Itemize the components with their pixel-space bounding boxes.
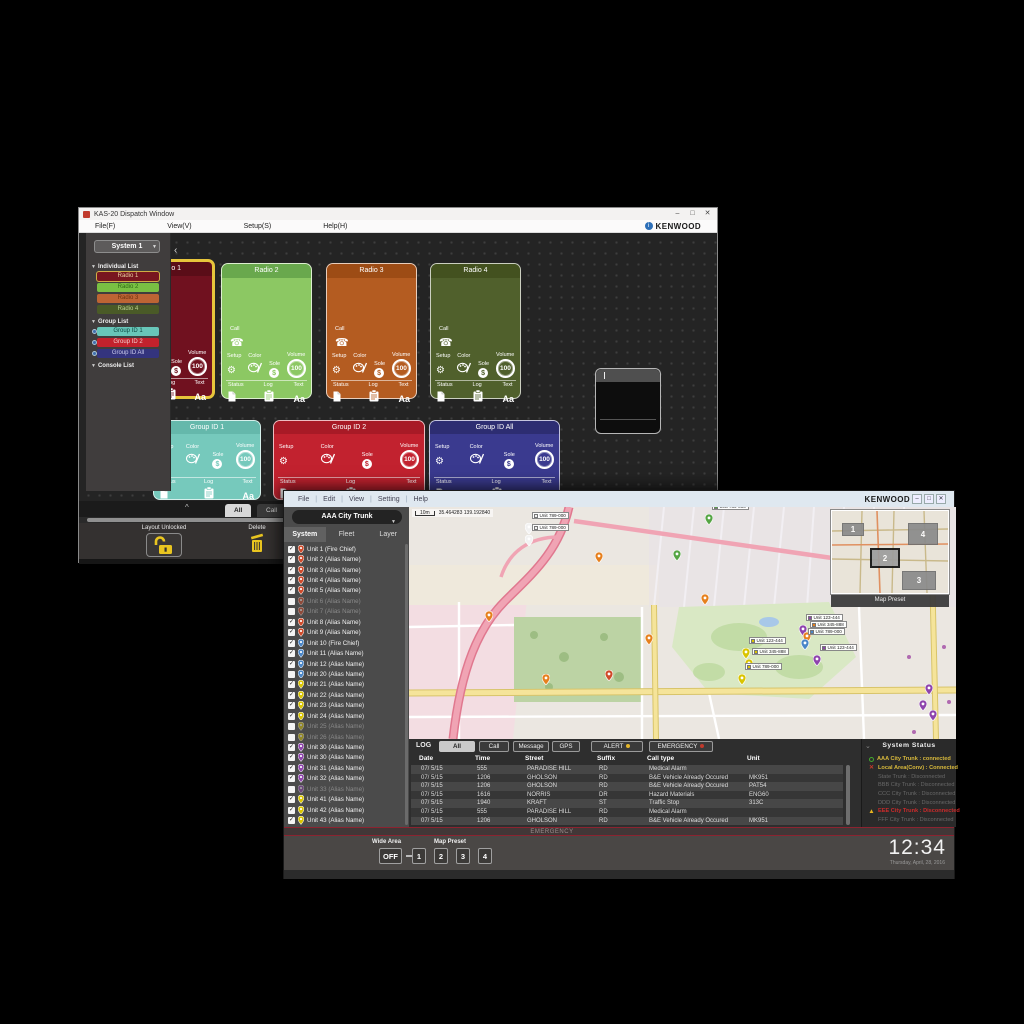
unit-row[interactable]: Unit 25 (Alias Name) (288, 721, 403, 731)
log-table-header: DateTimeStreetSuffixCall typeUnit (409, 754, 861, 765)
tile-group-id-2[interactable]: Group ID 2Setup⚙ColorSole$Volume100Statu… (273, 420, 425, 500)
minimap[interactable]: 1234 (831, 510, 949, 594)
system-status-text: BBB City Trunk : Disconnected (878, 782, 954, 788)
log-button[interactable]: Log (473, 382, 483, 407)
log-button[interactable]: Log (204, 479, 214, 501)
checkbox[interactable] (288, 598, 295, 605)
text-aa-icon: Aa (242, 491, 254, 501)
unit-map-label: Unit 123-444 (820, 644, 857, 651)
checkbox[interactable]: ✓ (288, 546, 295, 553)
volume-control[interactable]: Volume100 (236, 443, 255, 469)
color-button[interactable]: Color (470, 444, 484, 469)
setup-button[interactable]: Setup⚙ (436, 353, 450, 378)
system-status-row: ✕Local Area(Conv) : Connected (868, 764, 954, 773)
unit-label: Unit 23 (Alias Name) (307, 702, 364, 709)
unit-label: Unit 30 (Alias Name) (307, 754, 364, 761)
call-button[interactable]: Call☎ (335, 326, 349, 351)
sidebar-item-label: Radio 4 (97, 305, 159, 314)
checkbox[interactable]: ✓ (288, 661, 295, 668)
menu-item-view[interactable]: View (349, 496, 364, 503)
checkbox[interactable]: ✓ (288, 567, 295, 574)
sidebar-item-radio-3[interactable]: Radio 3 (86, 294, 170, 303)
tile-blank[interactable] (595, 368, 661, 434)
kenwood-logo: KENWOOD (865, 495, 910, 504)
unit-row[interactable]: ✓Unit 12 (Alias Name) (288, 659, 403, 669)
unit-label: Unit 42 (Alias Name) (307, 807, 364, 814)
log-cell: B&E Vehicle Already Occured (649, 818, 728, 824)
log-cell: B&E Vehicle Already Occured (649, 783, 728, 789)
tab-fleet[interactable]: Fleet (326, 527, 368, 542)
text-button[interactable]: TextAa (194, 380, 206, 405)
log-cell: 07/ 5/15 (421, 800, 443, 806)
checkbox[interactable]: ✓ (288, 629, 295, 636)
sidebar-item-label: Radio 3 (97, 294, 159, 303)
log-row[interactable]: 07/ 5/15555PARADISE HILLRDMedical Alarm (411, 765, 843, 774)
menu-item-file[interactable]: File (298, 496, 309, 503)
tile-radio-2[interactable]: Radio 2Call☎Setup⚙ColorSole$Volume100Sta… (221, 263, 312, 399)
volume-control[interactable]: Volume100 (496, 352, 515, 378)
map-bottom-bar: Wide Area OFF Map Preset 1234 12:34 Thur… (284, 836, 954, 870)
app-icon (83, 211, 90, 218)
unit-label: Unit 2 (Alias Name) (307, 556, 361, 563)
menu-item-setting[interactable]: Setting (378, 496, 400, 503)
setup-button[interactable]: Setup⚙ (279, 444, 293, 469)
minimap-preset-3[interactable]: 3 (902, 571, 936, 590)
call-button[interactable]: Call☎ (439, 326, 453, 351)
log-tab-emergency[interactable]: EMERGENCY (649, 741, 713, 752)
unit-row[interactable]: ✓Unit 23 (Alias Name) (288, 701, 403, 711)
volume-control[interactable]: Volume100 (287, 352, 306, 378)
dispatch-titlebar: KAS-20 Dispatch Window – □ ✕ (79, 208, 717, 220)
tile-radio-4[interactable]: Radio 4Call☎Setup⚙ColorSole$Volume100Sta… (430, 263, 521, 399)
sole-button[interactable]: Sole$ (269, 361, 280, 378)
pin-icon (645, 634, 653, 645)
palette-icon (186, 453, 200, 464)
volume-value: 100 (535, 450, 554, 469)
menu-item-edit[interactable]: Edit (323, 496, 335, 503)
log-button[interactable]: Log (369, 382, 379, 407)
palette-icon (353, 362, 367, 373)
pin-icon (929, 710, 937, 721)
log-cell: ST (599, 800, 607, 806)
text-aa-icon: Aa (398, 394, 410, 404)
sole-button[interactable]: Sole$ (374, 361, 385, 378)
checkbox[interactable]: ✓ (288, 817, 295, 824)
log-label: LOG (416, 742, 431, 749)
minimap-preset-1[interactable]: 1 (842, 523, 864, 536)
tile-divider (278, 477, 420, 478)
map-marker[interactable] (673, 548, 681, 566)
delete-button[interactable] (227, 533, 287, 557)
unit-row[interactable]: ✓Unit 3 (Alias Name) (288, 565, 403, 575)
pin-icon (813, 655, 821, 666)
log-cell: RD (599, 783, 608, 789)
trunk-system-dropdown[interactable]: AAA City Trunk ▼ (292, 510, 402, 524)
menu-separator: | (315, 496, 317, 503)
phone-icon: ☎ (230, 336, 244, 349)
unit-row[interactable]: Unit 26 (Alias Name) (288, 732, 403, 742)
sidebar-item-radio-4[interactable]: Radio 4 (86, 305, 170, 314)
unit-row[interactable]: ✓Unit 11 (Alias Name) (288, 648, 403, 658)
map-marker[interactable] (485, 609, 493, 627)
sole-button[interactable]: Sole$ (504, 452, 515, 469)
pin-icon (298, 722, 304, 731)
unit-row[interactable]: ✓Unit 8 (Alias Name) (288, 617, 403, 627)
palette-icon (457, 362, 471, 373)
log-cell: B&E Vehicle Already Occured (649, 775, 728, 781)
status-button[interactable]: Status (437, 382, 453, 407)
log-tab-gps[interactable]: GPS (552, 741, 580, 752)
unit-label: Unit 41 (Alias Name) (307, 796, 364, 803)
minimize-button[interactable]: – (912, 494, 922, 504)
clock: 12:34 (888, 836, 946, 860)
log-button[interactable]: Log (264, 382, 274, 407)
map-marker[interactable]: Unit 789-000 (525, 533, 533, 551)
minimize-button[interactable]: – (672, 209, 683, 219)
map-marker[interactable] (605, 668, 613, 686)
log-row[interactable]: 07/ 5/151940KRAFTSTTraffic Stop313C (411, 799, 843, 808)
volume-value: 100 (236, 450, 255, 469)
volume-value: 100 (188, 357, 207, 376)
chevron-up-icon[interactable]: ^ (185, 503, 189, 512)
pin-icon (595, 552, 603, 563)
unit-label: Unit 3 (Alias Name) (307, 567, 361, 574)
unit-row[interactable]: ✓Unit 2 (Alias Name) (288, 554, 403, 564)
log-row[interactable]: 07/ 5/151206GHOLSONRDB&E Vehicle Already… (411, 782, 843, 791)
map-marker[interactable] (919, 698, 927, 716)
call-button[interactable]: Call☎ (230, 326, 244, 351)
gear-icon: ⚙ (435, 456, 444, 467)
tile-header: Group ID 2 (274, 421, 424, 434)
map-marker[interactable] (701, 592, 709, 610)
pin-icon (485, 611, 493, 622)
volume-control[interactable]: Volume100 (392, 352, 411, 378)
pin-icon (701, 594, 709, 605)
unit-label: Unit 20 (Alias Name) (307, 671, 364, 678)
maximize-button[interactable]: □ (687, 209, 698, 219)
menu-item-helph[interactable]: Help(H) (323, 223, 347, 230)
log-column-street: Street (525, 755, 543, 762)
log-column-time: Time (475, 755, 490, 762)
sidebar-item-group-id-all[interactable]: Group ID All (86, 349, 170, 358)
checkbox[interactable]: ✓ (288, 587, 295, 594)
text-button[interactable]: TextAa (293, 382, 305, 407)
unit-row[interactable]: ✓Unit 5 (Alias Name) (288, 586, 403, 596)
dock-tab-all[interactable]: All (225, 504, 251, 517)
volume-control[interactable]: Volume100 (188, 350, 207, 376)
map-marker[interactable] (595, 550, 603, 568)
pin-icon (298, 597, 304, 606)
unit-row[interactable]: ✓Unit 31 (Alias Name) (288, 763, 403, 773)
checkbox[interactable]: ✓ (288, 650, 295, 657)
maximize-button[interactable]: □ (924, 494, 934, 504)
menu-item-filef[interactable]: File(F) (95, 223, 115, 230)
checkbox[interactable]: ✓ (288, 681, 295, 688)
status-doc-icon (228, 391, 236, 402)
sole-button[interactable]: Sole$ (478, 361, 489, 378)
sidebar-item-group-id-1[interactable]: Group ID 1 (86, 327, 170, 336)
map-menubar: File|Edit|View|Setting|Help KENWOOD – □ … (284, 491, 954, 507)
unit-row[interactable]: ✓Unit 41 (Alias Name) (288, 795, 403, 805)
unit-row[interactable]: ✓Unit 30 (Alias Name) (288, 753, 403, 763)
map-preset-button-2[interactable]: 2 (434, 848, 448, 864)
system-status-row: CCC City Trunk : Disconnected (868, 790, 954, 799)
dispatch-menubar: File(F)View(V)Setup(S)Help(H) i KENWOOD (79, 220, 717, 233)
unit-row[interactable]: ✓Unit 43 (Alias Name) (288, 815, 403, 825)
sidebar-item-label: Group ID 1 (97, 327, 159, 336)
log-cell: 07/ 5/15 (421, 818, 443, 824)
log-cell: 1206 (477, 775, 490, 781)
warning-icon: ▲ (868, 808, 875, 815)
checkbox[interactable]: ✓ (288, 765, 295, 772)
unit-row[interactable]: ✓Unit 21 (Alias Name) (288, 680, 403, 690)
unit-label: Unit 21 (Alias Name) (307, 681, 364, 688)
menu-item-viewv[interactable]: View(V) (167, 223, 191, 230)
pin-icon (298, 733, 304, 742)
close-button[interactable]: ✕ (702, 209, 713, 219)
unit-row[interactable]: ✓Unit 32 (Alias Name) (288, 774, 403, 784)
log-cell: 1206 (477, 818, 490, 824)
gear-icon: ⚙ (227, 365, 236, 376)
log-cell: 1616 (477, 792, 490, 798)
clock-date: Thursday, April, 28, 2016 (890, 860, 945, 866)
unit-row[interactable]: Unit 6 (Alias Name) (288, 596, 403, 606)
checkbox[interactable] (288, 671, 295, 678)
log-cell: RD (599, 775, 608, 781)
sidebar-section-label[interactable]: ▼Console List (91, 363, 170, 369)
unit-label: Unit 7 (Alias Name) (307, 608, 361, 615)
unit-label: Unit 32 (Alias Name) (307, 775, 364, 782)
log-row[interactable]: 07/ 5/151206GHOLSONRDB&E Vehicle Already… (411, 817, 843, 826)
log-tab-alert[interactable]: ALERT (591, 741, 643, 752)
map-marker[interactable] (542, 672, 550, 690)
unit-row[interactable]: ✓Unit 4 (Alias Name) (288, 575, 403, 585)
minimap-preset-4[interactable]: 4 (908, 523, 938, 545)
sidebar-item-radio-2[interactable]: Radio 2 (86, 283, 170, 292)
unit-label: Unit 10 (Fire Chief) (307, 640, 359, 647)
sidebar-section-label[interactable]: ▼Group List (91, 319, 170, 325)
sole-icon: $ (269, 368, 279, 378)
unit-row[interactable]: ✓Unit 22 (Alias Name) (288, 690, 403, 700)
map-preset-button-4[interactable]: 4 (478, 848, 492, 864)
tile-header: Radio 4 (431, 264, 520, 278)
unit-label: Unit 43 (Alias Name) (307, 817, 364, 824)
phone-icon: ☎ (439, 336, 453, 349)
sidebar-collapse-icon[interactable]: ‹ (174, 245, 177, 256)
unit-label: Unit 8 (Alias Name) (307, 619, 361, 626)
tile-radio-3[interactable]: Radio 3Call☎Setup⚙ColorSole$Volume100Sta… (326, 263, 417, 399)
unit-label: Unit 25 (Alias Name) (307, 723, 364, 730)
unit-row[interactable]: ✓Unit 10 (Fire Chief) (288, 638, 403, 648)
log-cell: Medical Alarm (649, 766, 687, 772)
sole-button[interactable]: Sole$ (212, 452, 223, 469)
unit-label: Unit 26 (Alias Name) (307, 734, 364, 741)
system-status-row: FFF City Trunk : Disconnected (868, 816, 954, 825)
text-aa-icon: Aa (502, 394, 514, 404)
system-status-title: System Status (862, 742, 956, 749)
gear-icon: ⚙ (279, 456, 288, 467)
checkbox[interactable]: ✓ (288, 692, 295, 699)
unit-row[interactable]: ✓Unit 1 (Fire Chief) (288, 544, 403, 554)
log-clipboard-icon (264, 390, 274, 402)
badge-dot (700, 744, 704, 748)
checkbox[interactable] (288, 786, 295, 793)
color-button[interactable]: Color (186, 444, 200, 469)
unit-row[interactable]: ✓Unit 42 (Alias Name) (288, 805, 403, 815)
log-row[interactable]: 07/ 5/151616NORRISDRHazard MaterialsENG6… (411, 791, 843, 800)
system-status-row: ▲EEE City Trunk : Disconnected (868, 807, 954, 816)
tab-layer[interactable]: Layer (367, 527, 409, 542)
color-button[interactable]: Color (353, 353, 367, 378)
checkbox[interactable]: ✓ (288, 702, 295, 709)
sole-icon: $ (374, 368, 384, 378)
log-tab-message[interactable]: Message (513, 741, 549, 752)
volume-control[interactable]: Volume100 (535, 443, 554, 469)
system-status-text: CCC City Trunk : Disconnected (878, 791, 955, 797)
unit-row[interactable]: ✓Unit 24 (Alias Name) (288, 711, 403, 721)
info-icon: i (645, 222, 653, 230)
sole-button[interactable]: Sole$ (362, 452, 373, 469)
volume-value: 100 (400, 450, 419, 469)
map-marker[interactable]: Unit 789-000 (738, 672, 746, 690)
unit-row[interactable]: Unit 33 (Alias Name) (288, 784, 403, 794)
log-cell: ENG60 (749, 792, 769, 798)
palette-icon (470, 453, 484, 464)
unit-label: Unit 30 (Alias Name) (307, 744, 364, 751)
tile-canvas: Radio 1Call☎Setup⚙ColorSole$Volume100Sta… (79, 233, 717, 501)
text-button[interactable]: TextAa (398, 382, 410, 407)
checkbox[interactable] (288, 723, 295, 730)
map-marker[interactable]: Unit 789-000 (801, 637, 809, 655)
system-status-text: AAA City Trunk : connected (877, 756, 951, 762)
checkbox[interactable]: ✓ (288, 577, 295, 584)
volume-value: 100 (496, 359, 515, 378)
fleet-panel: AAA City Trunk ▼ SystemFleetLayer ✓Unit … (284, 507, 409, 827)
badge-dot (626, 744, 630, 748)
unit-label: Unit 22 (Alias Name) (307, 692, 364, 699)
log-tab-call[interactable]: Call (479, 741, 509, 752)
log-tabbar: LOG AllCallMessageGPSALERTEMERGENCY (409, 740, 861, 753)
setup-button[interactable]: Setup⚙ (227, 353, 241, 378)
map-preset-button-1[interactable]: 1 (412, 848, 426, 864)
tab-system[interactable]: System (284, 527, 326, 542)
status-button[interactable]: Status (228, 382, 244, 407)
checkbox[interactable]: ✓ (288, 807, 295, 814)
checkbox[interactable] (288, 608, 295, 615)
map-preset-overlay-label: Map Preset (831, 594, 949, 607)
system-status-text: DDD City Trunk : Disconnected (878, 800, 955, 806)
status-button[interactable]: Status (333, 382, 349, 407)
unit-label: Unit 4 (Alias Name) (307, 577, 361, 584)
unit-map-label: Unit 789-000 (808, 628, 845, 635)
system-status-row: State Trunk : Disconnected (868, 772, 954, 781)
tile-header: Radio 3 (327, 264, 416, 278)
sidebar-item-group-id-2[interactable]: Group ID 2 (86, 338, 170, 347)
map-coordinates: 35.464283 139.192840 (439, 510, 490, 516)
map-view[interactable]: 10m 35.464283 139.192840 Unit 789-000Uni… (409, 507, 956, 739)
checkbox[interactable] (288, 734, 295, 741)
system-status-text: State Trunk : Disconnected (878, 774, 945, 780)
gear-icon: ⚙ (332, 365, 341, 376)
volume-control[interactable]: Volume100 (400, 443, 419, 469)
pin-icon (738, 674, 746, 685)
system-selector[interactable]: System 1 (94, 240, 160, 253)
log-row[interactable]: 07/ 5/15555PARADISE HILLRDMedical Alarm (411, 808, 843, 817)
checkbox[interactable]: ✓ (288, 754, 295, 761)
dock-tab-call[interactable]: Call (257, 504, 286, 517)
map-marker[interactable]: Unit 123-444 (813, 653, 821, 671)
tile-header: Group ID All (430, 421, 559, 434)
sidebar-section-label[interactable]: ▼Individual List (91, 264, 170, 270)
menu-item-help[interactable]: Help (414, 496, 428, 503)
log-cell: GHOLSON (527, 783, 557, 789)
checkbox[interactable]: ✓ (288, 713, 295, 720)
text-button[interactable]: TextAa (242, 479, 254, 501)
emergency-bar: EMERGENCY (284, 827, 954, 836)
text-button[interactable]: TextAa (502, 382, 514, 407)
checkbox[interactable]: ✓ (288, 640, 295, 647)
tile-group-id-all[interactable]: Group ID AllSetup⚙ColorSole$Volume100Sta… (429, 420, 560, 500)
checkbox[interactable]: ✓ (288, 796, 295, 803)
layout-lock-control: Layout Unlocked (117, 525, 211, 557)
trunk-system-label: AAA City Trunk (321, 513, 372, 520)
unit-row[interactable]: ✓Unit 30 (Alias Name) (288, 742, 403, 752)
log-cell: 07/ 5/15 (421, 792, 443, 798)
color-button[interactable]: Color (457, 353, 471, 378)
unit-label: Unit 11 (Alias Name) (307, 650, 364, 657)
checkbox[interactable]: ✓ (288, 775, 295, 782)
log-clipboard-icon (369, 390, 379, 402)
unit-row[interactable]: Unit 7 (Alias Name) (288, 607, 403, 617)
scrollbar-thumb[interactable] (87, 518, 287, 522)
checkbox[interactable]: ✓ (288, 744, 295, 751)
log-column-suffix: Suffix (597, 755, 615, 762)
setup-button[interactable]: Setup⚙ (332, 353, 346, 378)
unit-list-scrollbar[interactable] (405, 544, 408, 825)
color-button[interactable]: Color (321, 444, 335, 469)
setup-button[interactable]: Setup⚙ (435, 444, 449, 469)
unit-row[interactable]: Unit 20 (Alias Name) (288, 669, 403, 679)
map-marker[interactable] (929, 708, 937, 726)
map-marker[interactable] (645, 632, 653, 650)
layout-unlock-button[interactable] (146, 533, 182, 557)
minimap-preset-2[interactable]: 2 (870, 548, 900, 568)
triangle-down-icon: ▼ (91, 319, 96, 325)
close-button[interactable]: ✕ (936, 494, 946, 504)
color-button[interactable]: Color (248, 353, 262, 378)
log-tab-all[interactable]: All (439, 741, 475, 752)
map-marker[interactable]: Unit 789-000 (705, 512, 713, 530)
text-aa-icon: Aa (194, 392, 206, 402)
checkbox[interactable]: ✓ (288, 619, 295, 626)
unit-label: Unit 1 (Fire Chief) (307, 546, 356, 553)
system-status-rows: AAA City Trunk : connected✕Local Area(Co… (868, 755, 954, 825)
menu-separator: | (370, 496, 372, 503)
unit-label: Unit 12 (Alias Name) (307, 661, 364, 668)
menu-item-setups[interactable]: Setup(S) (244, 223, 272, 230)
log-scrollbar[interactable] (846, 765, 850, 825)
sidebar-item-radio-1[interactable]: Radio 1 (86, 272, 170, 281)
log-row[interactable]: 07/ 5/151206GHOLSONRDB&E Vehicle Already… (411, 774, 843, 783)
unit-row[interactable]: ✓Unit 9 (Alias Name) (288, 628, 403, 638)
checkbox[interactable]: ✓ (288, 556, 295, 563)
wide-area-toggle[interactable]: OFF (379, 848, 402, 864)
unit-pin (298, 812, 304, 825)
map-preset-button-3[interactable]: 3 (456, 848, 470, 864)
sole-button[interactable]: Sole$ (171, 359, 182, 376)
unit-label: Unit 6 (Alias Name) (307, 598, 361, 605)
volume-value: 100 (392, 359, 411, 378)
